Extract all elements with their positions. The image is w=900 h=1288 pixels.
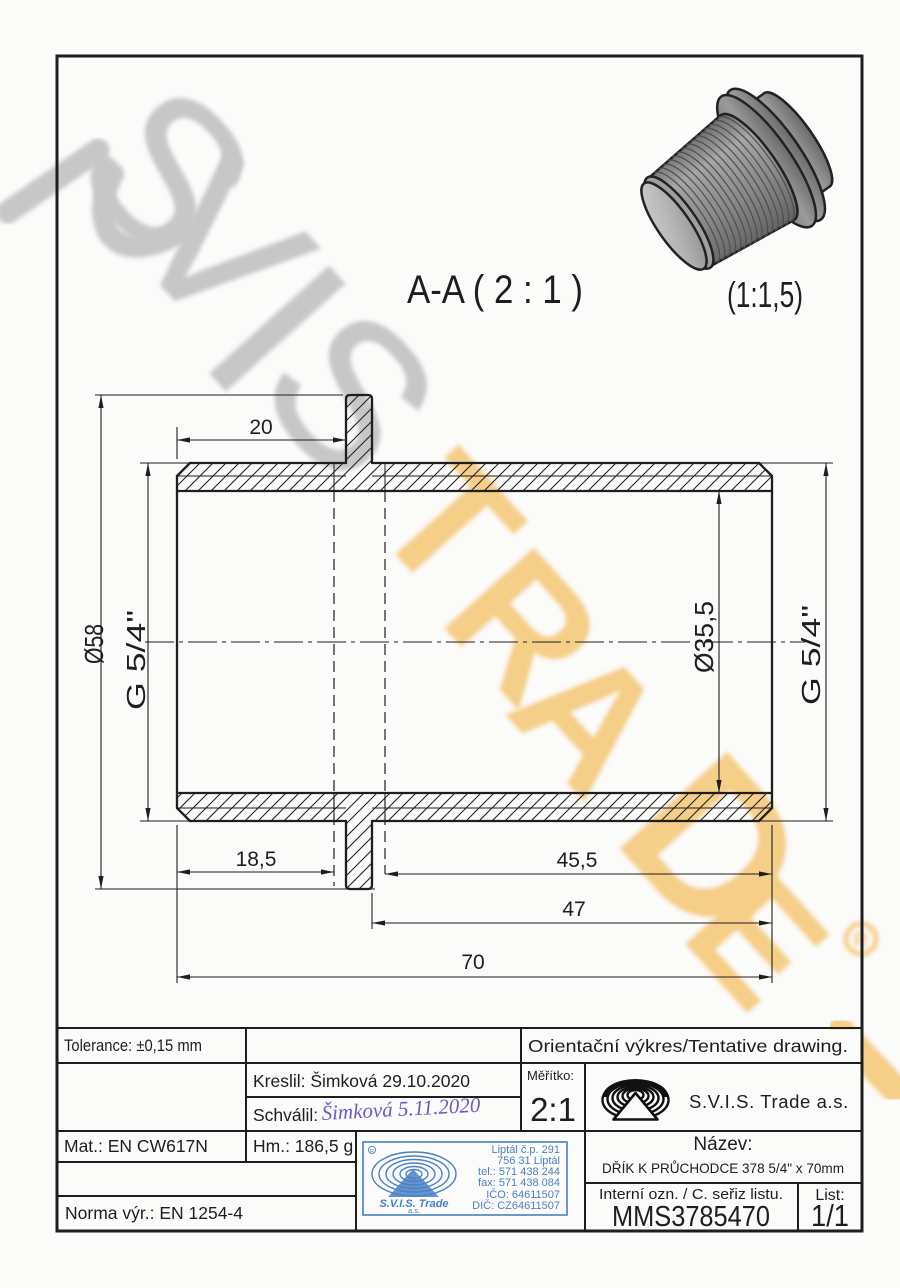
svg-text:Kreslil: Šimková 29.10.2020: Kreslil: Šimková 29.10.2020 <box>253 1070 470 1091</box>
svg-text:G 5/4": G 5/4" <box>796 605 826 705</box>
svg-text:18,5: 18,5 <box>236 848 277 871</box>
svg-text:R: R <box>370 1149 374 1155</box>
svg-text:Měřítko:: Měřítko: <box>527 1068 574 1083</box>
svg-text:Schválil:: Schválil: <box>253 1105 318 1125</box>
svg-text:Ø58: Ø58 <box>79 624 109 664</box>
svg-text:DIČ: CZ64611507: DIČ: CZ64611507 <box>472 1199 560 1212</box>
svg-text:(1:1,5): (1:1,5) <box>727 274 803 315</box>
svg-text:Orientační výkres/Tentative dr: Orientační výkres/Tentative drawing. <box>528 1036 848 1056</box>
svg-text:Norma výr.: EN 1254-4: Norma výr.: EN 1254-4 <box>65 1203 243 1223</box>
svg-text:Ø35,5: Ø35,5 <box>689 601 719 673</box>
svg-text:A-A ( 2 : 1 ): A-A ( 2 : 1 ) <box>407 268 583 312</box>
svg-text:G 5/4": G 5/4" <box>121 610 151 710</box>
svg-text:70: 70 <box>461 951 484 974</box>
svg-text:a.s.: a.s. <box>408 1206 420 1215</box>
svg-text:fax: 571 438 084: fax: 571 438 084 <box>478 1177 560 1189</box>
svg-text:Hm.: 186,5 g: Hm.: 186,5 g <box>253 1136 353 1156</box>
svg-text:2:1: 2:1 <box>530 1091 576 1128</box>
svg-text:45,5: 45,5 <box>557 849 598 872</box>
svg-text:20: 20 <box>249 416 272 439</box>
svg-text:47: 47 <box>562 898 585 921</box>
svg-text:MMS3785470: MMS3785470 <box>612 1201 770 1233</box>
svg-text:S.V.I.S. Trade a.s.: S.V.I.S. Trade a.s. <box>689 1091 849 1112</box>
svg-text:Název:: Název: <box>693 1134 752 1155</box>
svg-text:DŘÍK K PRŮCHODCE 378 5/4" x 70: DŘÍK K PRŮCHODCE 378 5/4" x 70mm <box>602 1159 844 1176</box>
svg-text:Mat.: EN CW617N: Mat.: EN CW617N <box>64 1136 208 1156</box>
svg-text:1/1: 1/1 <box>811 1198 849 1233</box>
svg-text:Tolerance: ±0,15 mm: Tolerance: ±0,15 mm <box>64 1037 202 1055</box>
